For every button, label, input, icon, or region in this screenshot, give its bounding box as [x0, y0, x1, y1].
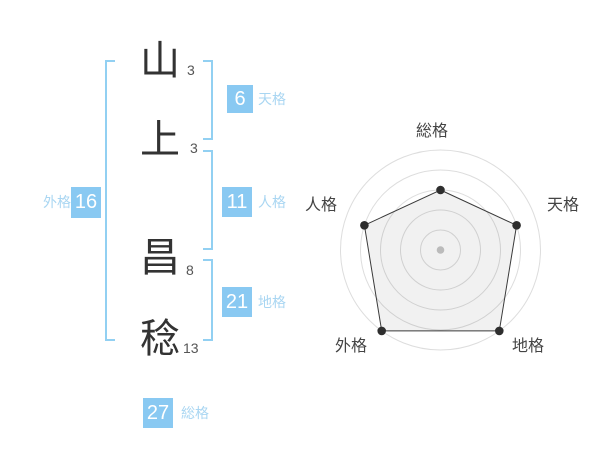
- seimei-handan-panel: 山 上 昌 稔 3 3 8 13 6 天格 11 人格 21 地格 外格 16 …: [0, 0, 600, 470]
- radar-chart: [0, 0, 600, 470]
- radar-axis-label-soukaku: 総格: [416, 123, 448, 140]
- radar-axis-label-jinkaku: 人格: [305, 197, 337, 214]
- radar-axis-label-chikaku: 地格: [512, 338, 544, 355]
- radar-axis-label-gaikaku: 外格: [335, 338, 367, 355]
- radar-axis-label-tenkaku: 天格: [547, 197, 579, 214]
